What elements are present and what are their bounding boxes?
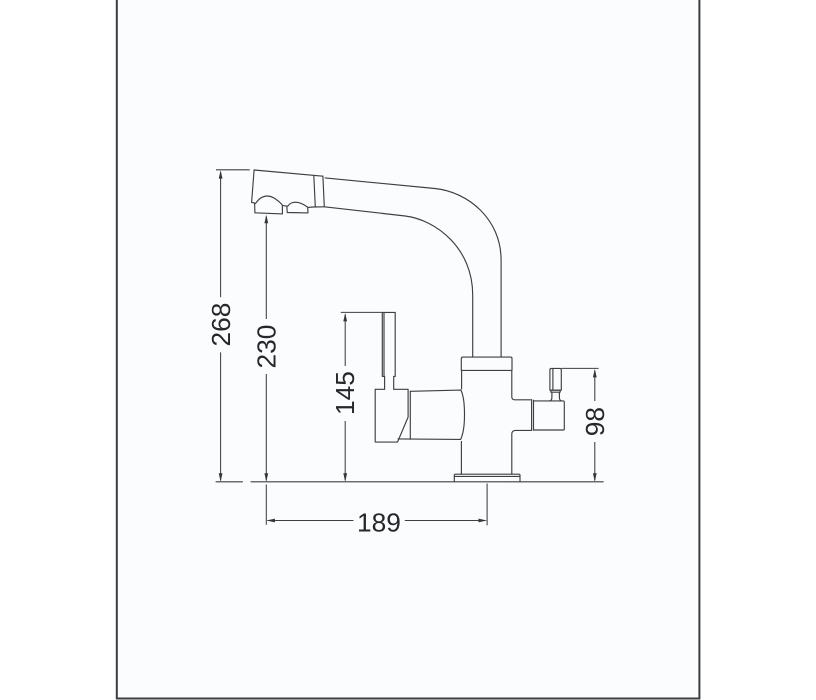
svg-text:189: 189 (357, 507, 401, 537)
svg-text:268: 268 (206, 303, 236, 347)
svg-text:98: 98 (580, 407, 610, 436)
svg-text:230: 230 (252, 325, 282, 369)
svg-text:145: 145 (330, 371, 360, 415)
